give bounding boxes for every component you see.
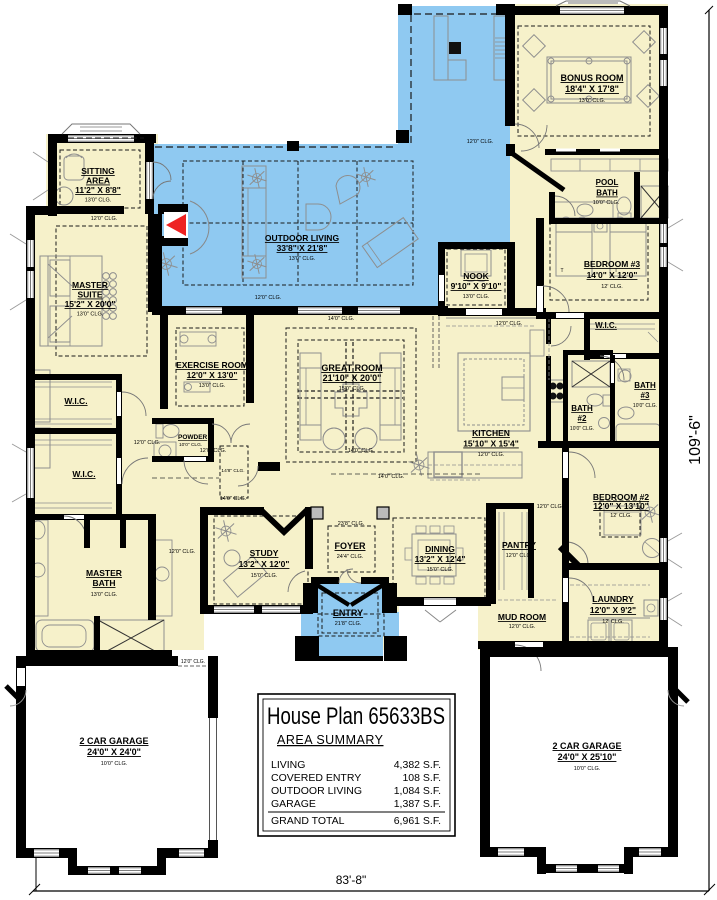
svg-text:108 S.F.: 108 S.F. <box>402 772 441 784</box>
svg-text:12' CLG.: 12' CLG. <box>602 619 624 625</box>
svg-text:10'0" CLG.: 10'0" CLG. <box>570 426 594 432</box>
svg-text:13'0" CLG.: 13'0" CLG. <box>579 98 606 104</box>
svg-text:10'0" CLG.: 10'0" CLG. <box>633 403 657 409</box>
svg-text:OUTDOOR LIVING: OUTDOOR LIVING <box>271 785 362 797</box>
svg-text:21'10" X 20'0": 21'10" X 20'0" <box>323 373 382 383</box>
svg-text:12'0" X 9'2": 12'0" X 9'2" <box>590 605 636 615</box>
svg-text:15'10" X 15'4": 15'10" X 15'4" <box>463 439 519 449</box>
svg-text:13'0" CLG.: 13'0" CLG. <box>77 312 104 318</box>
svg-text:LAUNDRY: LAUNDRY <box>592 594 634 604</box>
svg-text:33'8" X 21'8": 33'8" X 21'8" <box>277 243 328 253</box>
svg-text:#3: #3 <box>641 391 650 400</box>
svg-text:12' CLG.: 12' CLG. <box>601 284 623 290</box>
svg-text:BEDROOM #3: BEDROOM #3 <box>584 259 640 269</box>
svg-text:MASTER: MASTER <box>72 280 108 290</box>
svg-text:OUTDOOR LIVING: OUTDOOR LIVING <box>265 233 340 243</box>
svg-text:W.I.C.: W.I.C. <box>64 396 87 406</box>
svg-text:10'0" CLG.: 10'0" CLG. <box>101 761 128 767</box>
svg-text:9'10" X 9'10": 9'10" X 9'10" <box>451 281 502 291</box>
svg-text:COVERED ENTRY: COVERED ENTRY <box>271 772 361 784</box>
svg-text:15'0" CLG.: 15'0" CLG. <box>339 386 366 392</box>
svg-text:109'-6": 109'-6" <box>687 415 704 465</box>
svg-text:STUDY: STUDY <box>250 548 279 558</box>
svg-text:GRAND TOTAL: GRAND TOTAL <box>271 815 345 827</box>
svg-text:12' CLG.: 12' CLG. <box>610 513 632 519</box>
svg-text:14'0" CLG.: 14'0" CLG. <box>348 448 375 454</box>
svg-text:12'0" CLG.: 12'0" CLG. <box>478 452 505 458</box>
svg-text:13'0" CLG.: 13'0" CLG. <box>199 383 226 389</box>
svg-text:24'0" X 25'10": 24'0" X 25'10" <box>558 752 617 762</box>
svg-text:House Plan 65633BS: House Plan 65633BS <box>267 703 445 730</box>
svg-text:24'0" X 24'0": 24'0" X 24'0" <box>87 747 141 757</box>
svg-text:83'-8": 83'-8" <box>336 873 367 887</box>
svg-text:T: T <box>560 268 563 274</box>
svg-text:GREAT ROOM: GREAT ROOM <box>321 363 382 373</box>
svg-text:13'0" CLG.: 13'0" CLG. <box>91 592 118 598</box>
svg-text:10'0" CLG.: 10'0" CLG. <box>593 200 620 206</box>
svg-text:POWDER: POWDER <box>178 434 208 441</box>
svg-text:DINING: DINING <box>425 544 455 554</box>
svg-text:BATH: BATH <box>93 578 116 588</box>
svg-text:EXERCISE ROOM: EXERCISE ROOM <box>176 360 248 370</box>
svg-text:NOOK: NOOK <box>463 271 489 281</box>
svg-text:10'0" CLG.: 10'0" CLG. <box>179 442 202 448</box>
svg-text:15'0" CLG.: 15'0" CLG. <box>427 567 454 573</box>
svg-text:14'0" X 12'0": 14'0" X 12'0" <box>587 270 638 280</box>
svg-text:14'8" CLG.: 14'8" CLG. <box>221 468 244 474</box>
svg-text:6,961 S.F.: 6,961 S.F. <box>394 815 441 827</box>
svg-text:14'0" CLG.: 14'0" CLG. <box>328 316 355 322</box>
svg-text:14'0" CLG.: 14'0" CLG. <box>220 496 247 502</box>
svg-text:BATH: BATH <box>634 381 656 390</box>
svg-text:12'0" CLG.: 12'0" CLG. <box>200 448 227 454</box>
svg-text:BATH: BATH <box>596 189 618 198</box>
svg-text:1,084 S.F.: 1,084 S.F. <box>394 785 441 797</box>
svg-text:AREA: AREA <box>86 176 110 186</box>
svg-text:12'0" CLG.: 12'0" CLG. <box>134 440 161 446</box>
svg-text:12'0" CLG.: 12'0" CLG. <box>506 553 533 559</box>
svg-text:12'0" CLG.: 12'0" CLG. <box>181 659 205 665</box>
svg-text:SUITE: SUITE <box>77 290 102 300</box>
svg-text:BATH: BATH <box>571 404 593 413</box>
svg-text:MUD ROOM: MUD ROOM <box>498 612 546 622</box>
svg-text:FOYER: FOYER <box>334 541 366 551</box>
svg-text:11'2" X 8'8": 11'2" X 8'8" <box>75 185 121 195</box>
svg-text:BONUS ROOM: BONUS ROOM <box>561 73 624 83</box>
svg-text:AREA SUMMARY: AREA SUMMARY <box>277 733 384 747</box>
svg-text:GARAGE: GARAGE <box>271 798 316 810</box>
svg-text:SITTING: SITTING <box>81 166 115 176</box>
svg-text:12'0" CLG.: 12'0" CLG. <box>91 216 118 222</box>
svg-text:12'0" CLG.: 12'0" CLG. <box>255 295 282 301</box>
svg-text:4,382 S.F.: 4,382 S.F. <box>394 759 441 771</box>
svg-text:12'0" X 13'0": 12'0" X 13'0" <box>187 370 238 380</box>
svg-text:LIVING: LIVING <box>271 759 305 771</box>
svg-text:PANTRY: PANTRY <box>502 540 536 550</box>
svg-text:12'0" CLG.: 12'0" CLG. <box>467 139 494 145</box>
svg-text:21'8" CLG.: 21'8" CLG. <box>335 621 362 627</box>
svg-text:18'4" X 17'8": 18'4" X 17'8" <box>565 84 619 94</box>
svg-text:MASTER: MASTER <box>86 568 122 578</box>
svg-text:ENTRY: ENTRY <box>333 608 363 618</box>
svg-text:W.I.C.: W.I.C. <box>72 469 95 479</box>
svg-text:23'8" CLG.: 23'8" CLG. <box>338 521 365 527</box>
svg-text:13'0" CLG.: 13'0" CLG. <box>463 294 490 300</box>
svg-text:12'0" CLG.: 12'0" CLG. <box>496 321 523 327</box>
svg-text:12'0" CLG.: 12'0" CLG. <box>509 624 536 630</box>
svg-text:14'0" CLG.: 14'0" CLG. <box>378 474 405 480</box>
svg-text:12'0" CLG.: 12'0" CLG. <box>537 504 564 510</box>
svg-text:2 CAR GARAGE: 2 CAR GARAGE <box>552 741 621 751</box>
svg-text:15'2" X 20'0": 15'2" X 20'0" <box>65 299 116 309</box>
svg-text:#2: #2 <box>578 414 587 423</box>
svg-text:POOL: POOL <box>596 178 619 187</box>
svg-text:13'0" CLG.: 13'0" CLG. <box>85 198 112 204</box>
svg-text:1,387 S.F.: 1,387 S.F. <box>394 798 441 810</box>
svg-text:15'0" CLG.: 15'0" CLG. <box>251 573 278 579</box>
svg-text:24'4" CLG.: 24'4" CLG. <box>337 554 364 560</box>
svg-text:13'0" CLG.: 13'0" CLG. <box>289 256 316 262</box>
svg-text:2 CAR GARAGE: 2 CAR GARAGE <box>79 736 148 746</box>
svg-text:13'2" X 12'0": 13'2" X 12'0" <box>239 559 290 569</box>
svg-text:KITCHEN: KITCHEN <box>472 428 510 438</box>
svg-text:10'0" CLG.: 10'0" CLG. <box>574 766 601 772</box>
svg-text:12'0" CLG.: 12'0" CLG. <box>169 549 196 555</box>
svg-text:W.I.C.: W.I.C. <box>595 321 617 330</box>
svg-text:13'2" X 12'4": 13'2" X 12'4" <box>415 554 466 564</box>
svg-text:12'0" X 13'10": 12'0" X 13'10" <box>593 501 649 511</box>
